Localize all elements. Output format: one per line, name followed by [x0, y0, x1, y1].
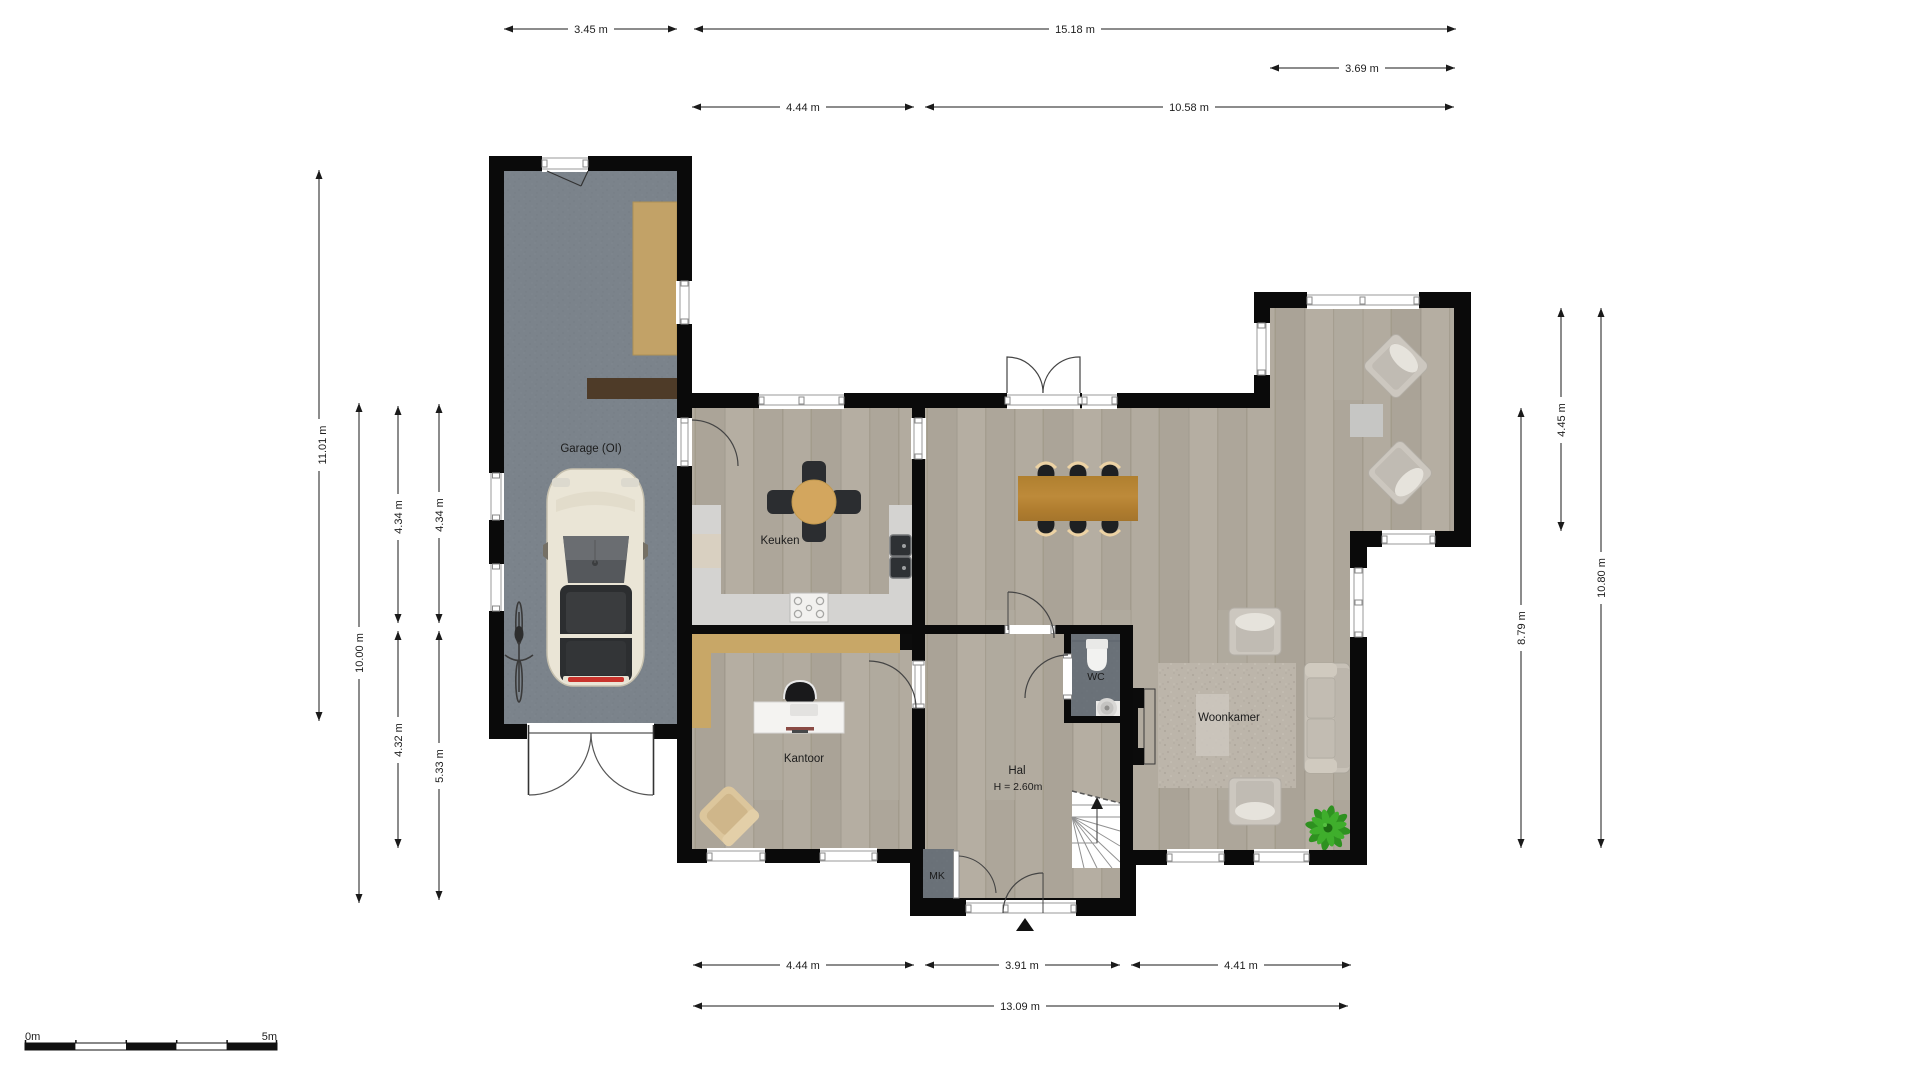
svg-text:3.45 m: 3.45 m — [574, 24, 608, 36]
svg-text:Keuken: Keuken — [760, 535, 799, 547]
svg-text:4.45 m: 4.45 m — [1556, 403, 1568, 437]
svg-text:0m: 0m — [25, 1031, 40, 1043]
svg-text:Woonkamer: Woonkamer — [1198, 712, 1260, 724]
svg-text:3.69 m: 3.69 m — [1345, 63, 1379, 75]
svg-text:4.41 m: 4.41 m — [1224, 960, 1258, 972]
svg-text:10.58 m: 10.58 m — [1169, 102, 1209, 114]
svg-text:Kantoor: Kantoor — [784, 753, 824, 765]
svg-text:3.91 m: 3.91 m — [1005, 960, 1039, 972]
svg-text:11.01 m: 11.01 m — [317, 426, 329, 465]
svg-text:5.33 m: 5.33 m — [434, 749, 446, 783]
svg-text:10.00 m: 10.00 m — [354, 633, 366, 673]
svg-text:4.44 m: 4.44 m — [786, 102, 820, 114]
svg-text:Hal: Hal — [1008, 765, 1025, 777]
svg-text:WC: WC — [1087, 671, 1105, 683]
svg-text:15.18 m: 15.18 m — [1055, 24, 1095, 36]
svg-text:4.34 m: 4.34 m — [434, 498, 446, 532]
svg-text:Garage (OI): Garage (OI) — [560, 443, 622, 455]
svg-text:4.32 m: 4.32 m — [393, 723, 405, 757]
svg-text:4.44 m: 4.44 m — [786, 960, 820, 972]
svg-text:13.09 m: 13.09 m — [1000, 1001, 1040, 1013]
svg-text:8.79 m: 8.79 m — [1516, 611, 1528, 645]
svg-text:10.80 m: 10.80 m — [1596, 558, 1608, 598]
svg-text:5m: 5m — [262, 1031, 277, 1043]
svg-text:4.34 m: 4.34 m — [393, 500, 405, 534]
svg-text:MK: MK — [929, 870, 945, 882]
svg-text:H = 2.60m: H = 2.60m — [994, 781, 1043, 793]
